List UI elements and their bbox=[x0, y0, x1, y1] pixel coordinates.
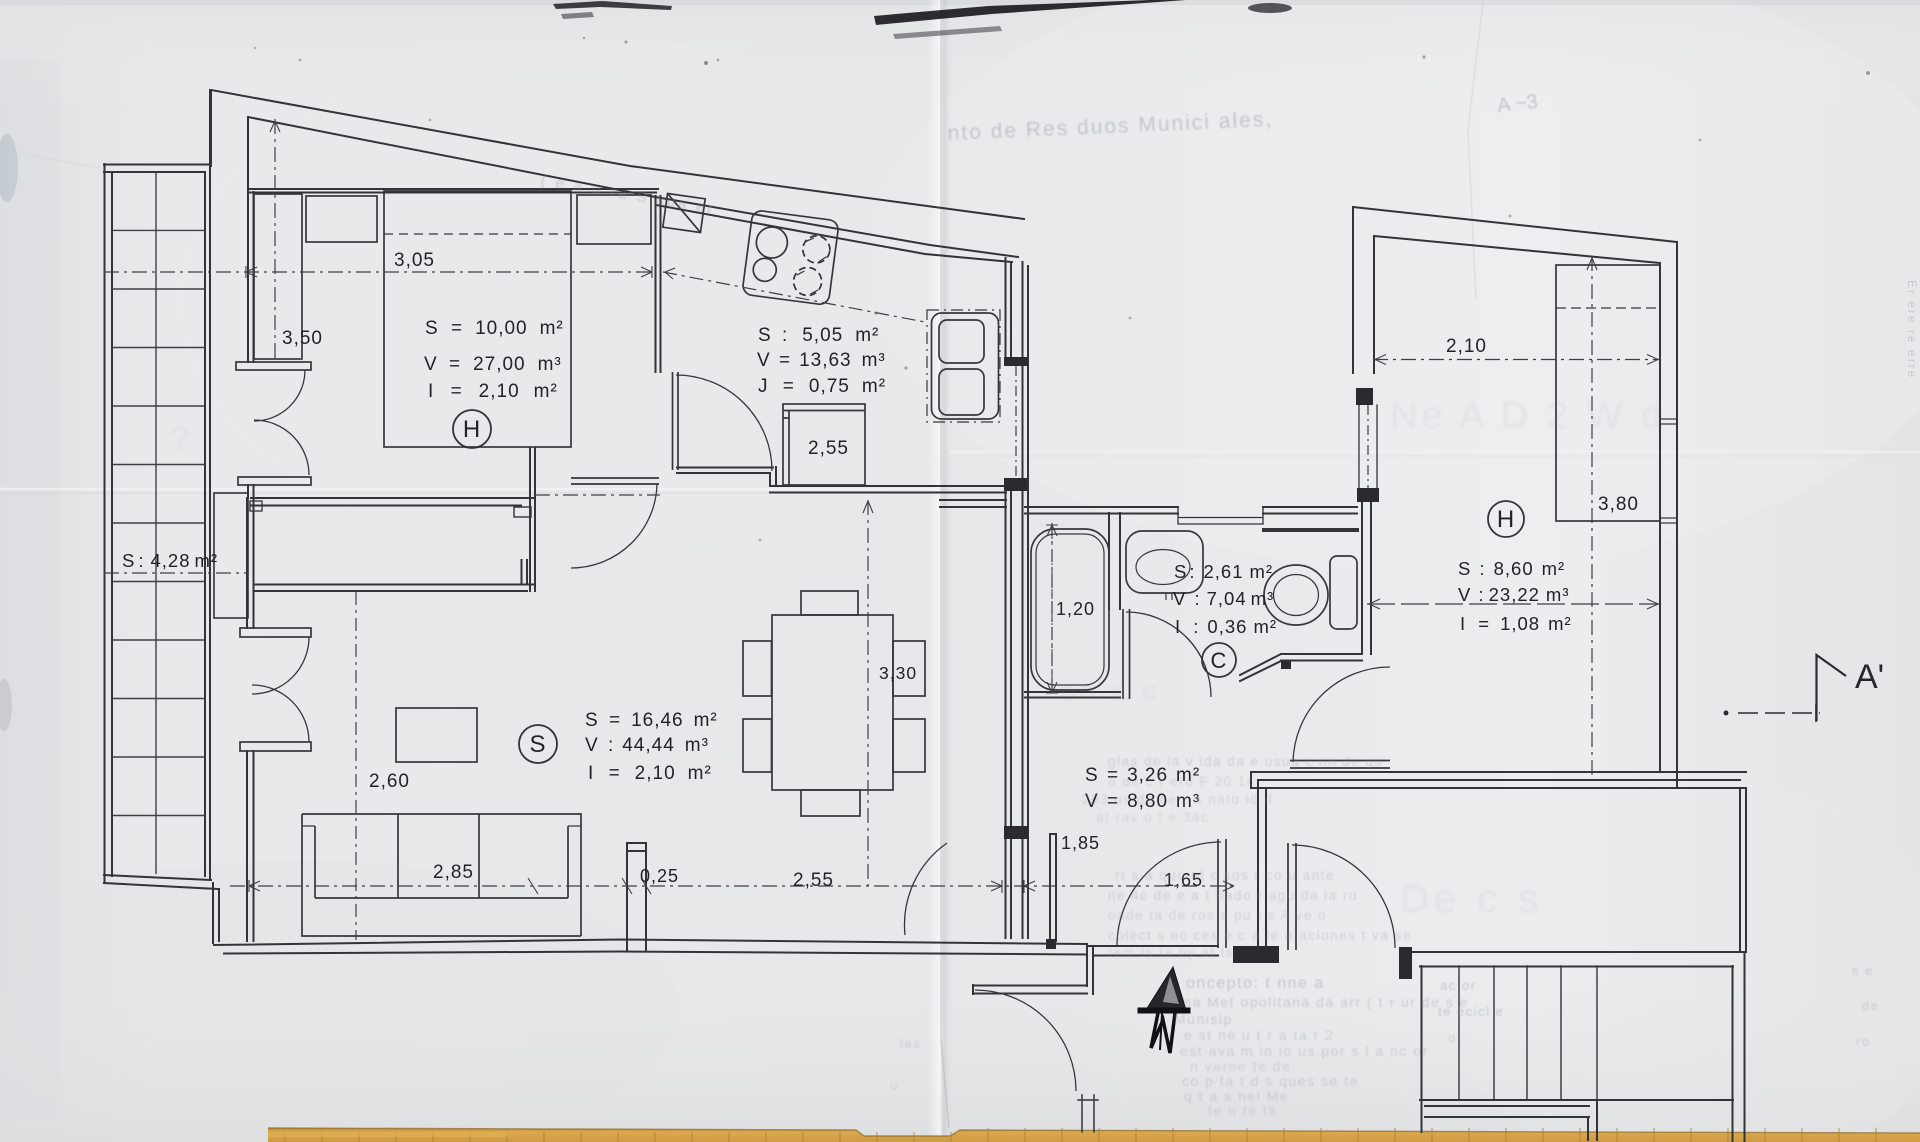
svg-text:colect s ec ces e c a le: colect s ec ces e c a le e aciones t va … bbox=[1108, 928, 1412, 943]
svg-text:rt s a quo el c sos r co: rt s a quo el c sos r co u ante bbox=[1115, 868, 1335, 883]
svg-text:oncepto: t nne a: oncepto: t nne a bbox=[1186, 975, 1325, 992]
svg-text:De c s: De c s bbox=[1400, 877, 1543, 921]
svg-text:rem ls ta by at ts: rem ls ta by at ts bbox=[1108, 945, 1234, 960]
svg-text:C: C bbox=[1211, 648, 1228, 673]
svg-text:3,50: 3,50 bbox=[282, 328, 323, 349]
svg-text:on a c: on a c bbox=[1060, 675, 1160, 706]
svg-text:S =16,46m²: S =16,46m² bbox=[585, 710, 718, 731]
svg-text:co p ta t d s ques: co p ta t d s ques se te bbox=[1182, 1073, 1359, 1089]
svg-text:H: H bbox=[463, 416, 481, 443]
svg-text:3,30: 3,30 bbox=[879, 663, 917, 683]
svg-text:ne 4c de e a t llado r: ne 4c de e a t llado r agu da la ru bbox=[1108, 888, 1358, 903]
svg-text:0,25: 0,25 bbox=[640, 866, 679, 886]
svg-text:A ~3: A ~3 bbox=[1496, 91, 1539, 117]
svg-text:a de c r ero F 20: a de c r ero F 20 1c bbox=[1108, 774, 1255, 789]
svg-text:S :8,60m²: S :8,60m² bbox=[1458, 558, 1565, 579]
svg-text:te n te ta: te n te ta bbox=[1208, 1102, 1277, 1118]
svg-text:ias: ias bbox=[900, 1036, 921, 1051]
svg-text:Ne A D 2 W d: Ne A D 2 W d bbox=[1390, 395, 1666, 437]
svg-text:e st ne u t r a t: e st ne u t r a ta r 2 bbox=[1184, 1027, 1335, 1043]
svg-text:S :5,05m²: S :5,05m² bbox=[758, 325, 879, 346]
svg-text:S: S bbox=[529, 731, 546, 758]
svg-text:n varoe te de: n varoe te de bbox=[1190, 1058, 1291, 1074]
svg-text:2,60: 2,60 bbox=[369, 771, 410, 792]
svg-text:te ecicl e: te ecicl e bbox=[1438, 1004, 1504, 1019]
svg-text:2,55: 2,55 bbox=[808, 438, 849, 459]
svg-text:at rav o t e 34c: at rav o t e 34c bbox=[1096, 810, 1209, 825]
svg-text:s e: s e bbox=[1852, 963, 1874, 978]
svg-text:2,85: 2,85 bbox=[433, 862, 474, 883]
svg-text:ro: ro bbox=[1856, 1034, 1871, 1049]
svg-text:sa Met opolitana da arr: sa Met opolitana da arr ( t r ur de s e bbox=[1184, 994, 1469, 1010]
svg-text:est ava m in io us por: est ava m in io us por s l a nc or bbox=[1180, 1043, 1429, 1059]
svg-text:V :44,44m³: V :44,44m³ bbox=[585, 735, 709, 756]
svg-text:S:2,61m²: S:2,61m² bbox=[1174, 561, 1273, 582]
svg-text:2,55: 2,55 bbox=[793, 870, 834, 891]
svg-text:. u: . u bbox=[880, 1078, 899, 1093]
svg-text:H: H bbox=[1497, 506, 1515, 533]
svg-text:1,85: 1,85 bbox=[1061, 833, 1100, 853]
svg-text:o: o bbox=[1448, 1030, 1457, 1045]
svg-text:glas de la v ida da e u: glas de la v ida da e usua c nn de gu bbox=[1108, 754, 1383, 769]
svg-text:2,10: 2,10 bbox=[1446, 336, 1487, 357]
svg-text:de: de bbox=[1862, 998, 1879, 1013]
svg-text:V :7,04m³: V :7,04m³ bbox=[1173, 588, 1274, 609]
svg-text:oade ta de ros s pu: oade ta de ros s pu t s A ve o bbox=[1108, 908, 1327, 923]
svg-text:Er ere re erre: Er ere re erre bbox=[1905, 280, 1919, 379]
svg-text:3,05: 3,05 bbox=[394, 250, 435, 271]
svg-text:3,80: 3,80 bbox=[1598, 494, 1639, 515]
svg-text:1,20: 1,20 bbox=[1056, 599, 1095, 619]
svg-text:?: ? bbox=[170, 420, 189, 458]
svg-text:Munisip: Munisip bbox=[1174, 1011, 1233, 1027]
svg-text:ac or: ac or bbox=[1440, 978, 1476, 993]
svg-text:203 us de ce r a na: 203 us de ce r a nato ld d bbox=[1082, 792, 1273, 807]
svg-text:V :23,22m³: V :23,22m³ bbox=[1458, 584, 1570, 605]
svg-text:V =13,63m³: V =13,63m³ bbox=[757, 350, 886, 371]
svg-text:A': A' bbox=[1855, 658, 1884, 696]
